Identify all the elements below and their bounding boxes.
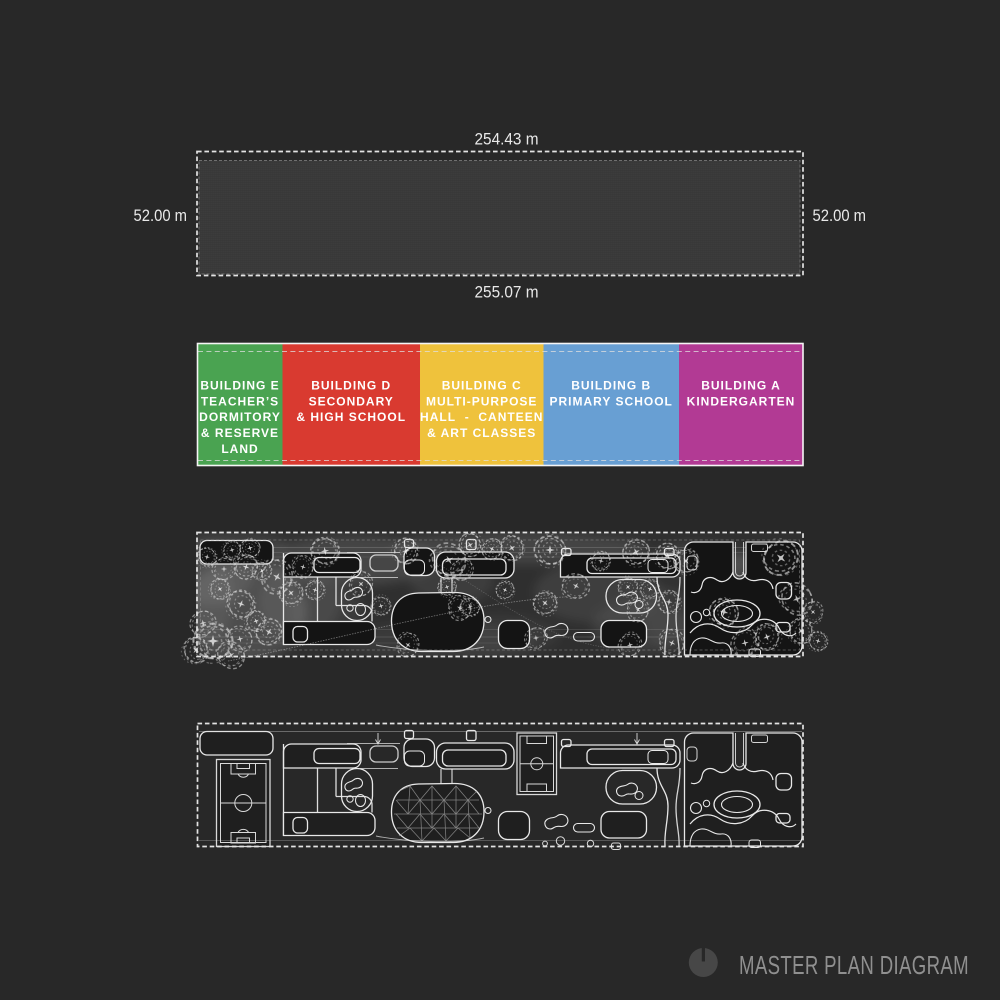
svg-text:& HIGH SCHOOL: & HIGH SCHOOL (296, 410, 406, 424)
svg-text:TEACHER’S: TEACHER’S (201, 394, 279, 408)
svg-text:254.43 m: 254.43 m (475, 131, 539, 149)
svg-text:BUILDING B: BUILDING B (571, 379, 651, 393)
svg-text:BUILDING A: BUILDING A (701, 379, 781, 393)
svg-text:BUILDING E: BUILDING E (200, 379, 279, 393)
svg-text:KINDERGARTEN: KINDERGARTEN (687, 394, 796, 408)
svg-text:LAND: LAND (221, 442, 258, 456)
svg-text:SECONDARY: SECONDARY (309, 394, 394, 408)
svg-text:DORMITORY: DORMITORY (199, 410, 281, 424)
svg-text:52.00 m: 52.00 m (134, 207, 188, 225)
svg-text:& RESERVE: & RESERVE (201, 426, 279, 440)
svg-text:BUILDING D: BUILDING D (311, 379, 391, 393)
svg-text:HALL - CANTEEN: HALL - CANTEEN (420, 410, 543, 424)
svg-text:255.07 m: 255.07 m (475, 283, 539, 301)
svg-text:BUILDING C: BUILDING C (442, 379, 522, 393)
svg-text:MASTER PLAN DIAGRAM: MASTER PLAN DIAGRAM (739, 950, 969, 980)
svg-text:52.00 m: 52.00 m (813, 207, 867, 225)
svg-text:PRIMARY SCHOOL: PRIMARY SCHOOL (550, 394, 673, 408)
svg-text:& ART CLASSES: & ART CLASSES (427, 426, 536, 440)
svg-text:MULTI-PURPOSE: MULTI-PURPOSE (426, 394, 537, 408)
